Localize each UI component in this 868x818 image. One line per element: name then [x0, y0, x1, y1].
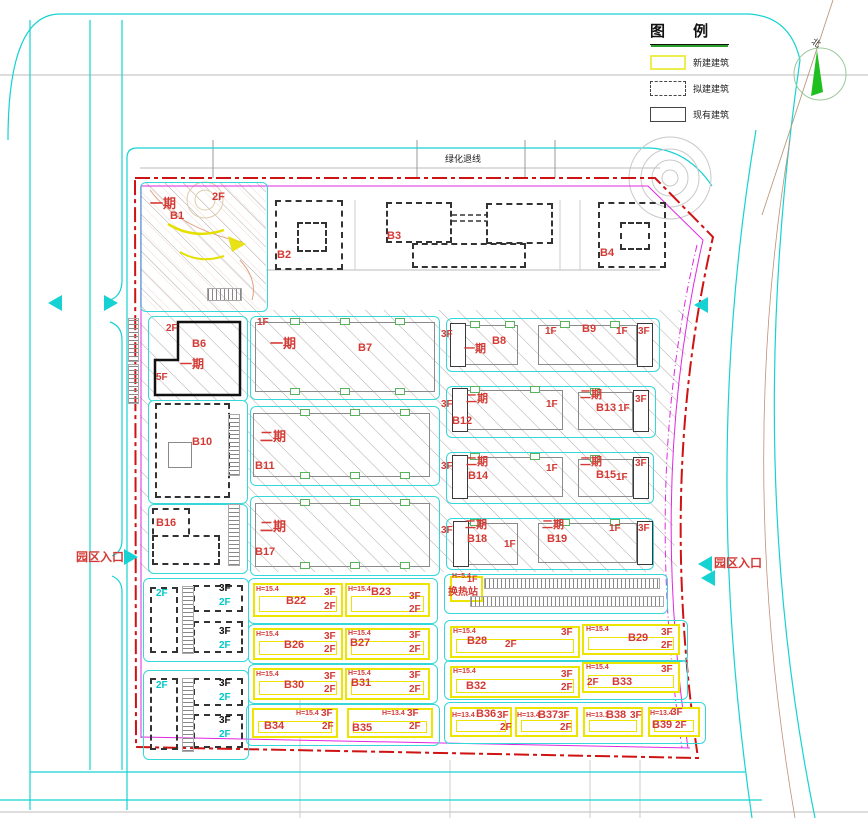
legend-swatch-new — [650, 55, 686, 70]
legend-swatch-existing — [650, 107, 686, 122]
legend-label: 拟建建筑 — [693, 82, 729, 95]
direction-arrow-icon — [124, 549, 138, 565]
legend-label: 现有建筑 — [693, 108, 729, 121]
site-plan-canvas: 一期B12FB2B3B42FB6一期5F1F一期B73F一期B81FB91F3F… — [0, 0, 868, 818]
legend-swatch-proposed — [650, 81, 686, 96]
legend-item-existing: 现有建筑 — [650, 106, 729, 123]
legend: 图 例 新建建筑拟建建筑现有建筑 — [650, 20, 729, 123]
legend-title: 图 例 — [650, 20, 729, 45]
legend-item-proposed: 拟建建筑 — [650, 80, 729, 97]
legend-label: 新建建筑 — [693, 56, 729, 69]
legend-item-new: 新建建筑 — [650, 54, 729, 71]
direction-arrow-icon — [104, 295, 118, 311]
direction-arrow-icon — [701, 570, 715, 586]
direction-arrow-icon — [48, 295, 62, 311]
annotation-layer — [0, 0, 868, 818]
direction-arrow-icon — [694, 297, 708, 313]
